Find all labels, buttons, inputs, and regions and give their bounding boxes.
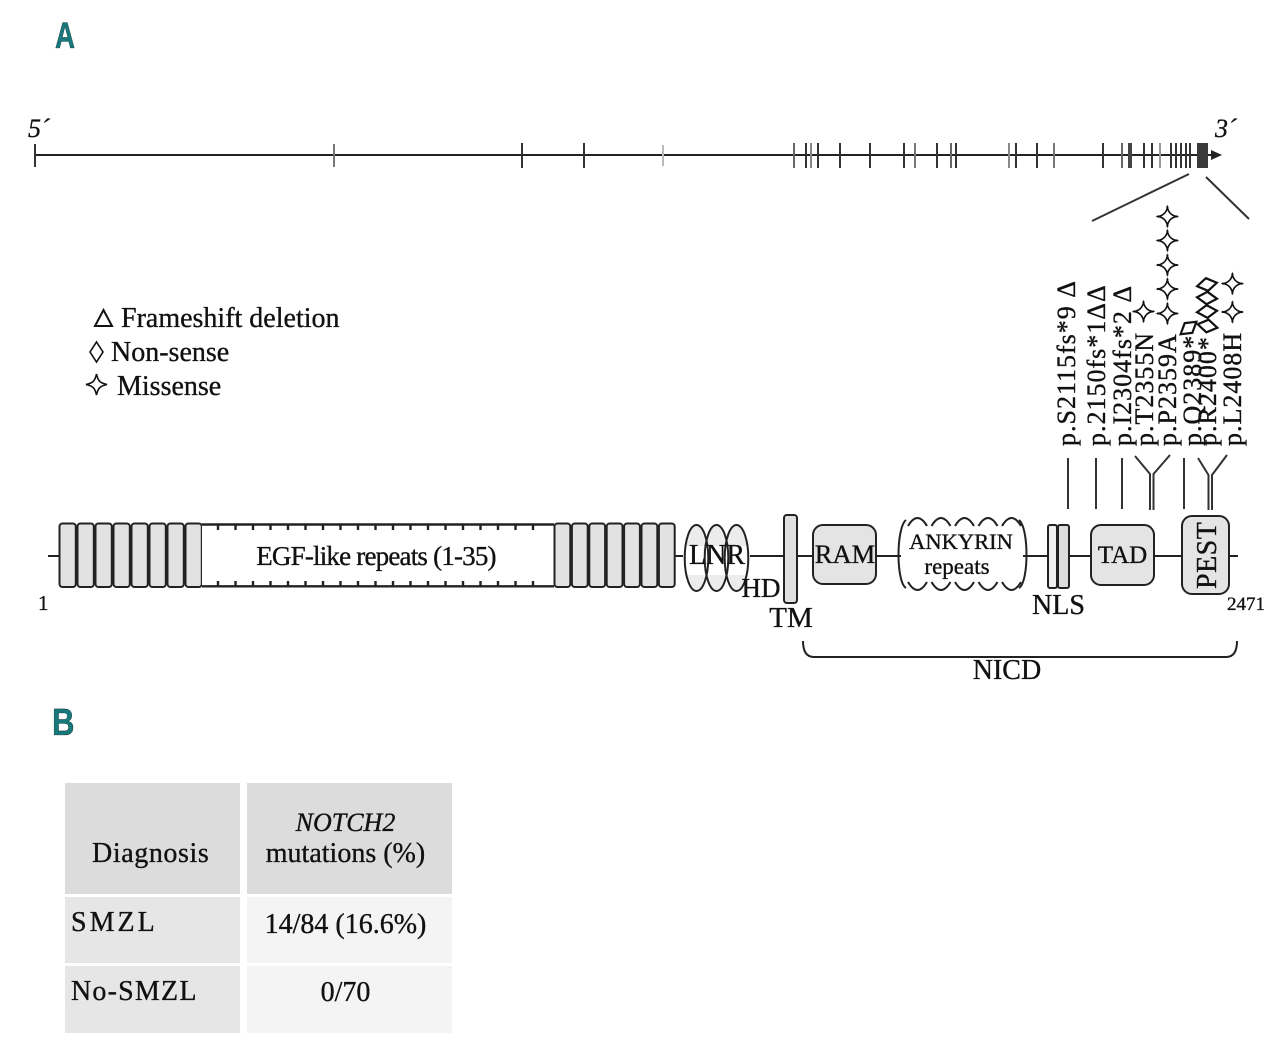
svg-text:p.2150fs*1ΔΔ: p.2150fs*1ΔΔ xyxy=(1082,284,1111,446)
svg-text:5´: 5´ xyxy=(28,114,51,143)
svg-text:repeats: repeats xyxy=(924,554,989,579)
svg-text:p.L2408H: p.L2408H xyxy=(1218,332,1247,446)
svg-text:NICD: NICD xyxy=(973,655,1041,686)
svg-text:B: B xyxy=(52,702,75,744)
svg-text:3´: 3´ xyxy=(1214,114,1238,143)
svg-text:PEST: PEST xyxy=(1192,522,1223,589)
svg-text:2471: 2471 xyxy=(1227,594,1265,615)
svg-text:LNR: LNR xyxy=(689,540,745,571)
svg-text:HD: HD xyxy=(742,573,781,603)
svg-text:TM: TM xyxy=(769,602,813,634)
svg-text:p.S2115fs*9 Δ: p.S2115fs*9 Δ xyxy=(1052,280,1081,446)
svg-text:EGF-like repeats (1-35): EGF-like repeats (1-35) xyxy=(256,541,496,571)
svg-text:A: A xyxy=(55,14,75,56)
svg-text:Missense: Missense xyxy=(117,371,221,402)
svg-text:1: 1 xyxy=(38,591,49,615)
svg-text:NLS: NLS xyxy=(1032,590,1085,621)
svg-text:Frameshift deletion: Frameshift deletion xyxy=(121,303,340,334)
svg-text:ANKYRIN: ANKYRIN xyxy=(909,529,1013,554)
svg-text:TAD: TAD xyxy=(1098,542,1147,569)
svg-text:Non-sense: Non-sense xyxy=(111,337,229,368)
svg-text:RAM: RAM xyxy=(815,539,875,569)
